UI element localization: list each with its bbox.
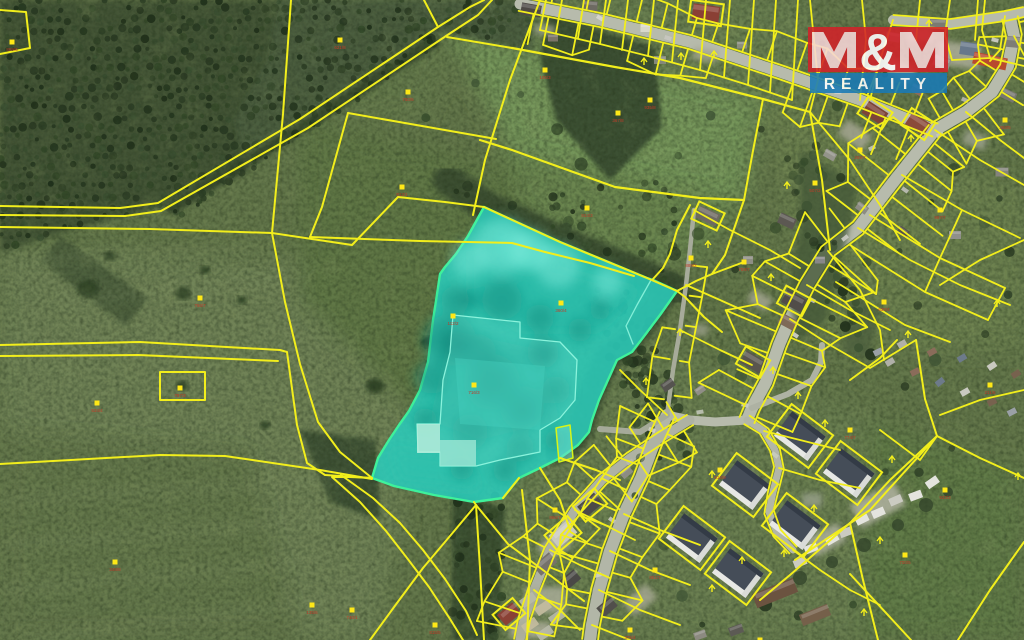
svg-text:815/5: 815/5 [429, 630, 441, 635]
svg-text:700/5: 700/5 [899, 560, 911, 565]
svg-text:997/7: 997/7 [934, 215, 946, 220]
svg-text:135/6: 135/6 [306, 610, 318, 615]
svg-text:851/7: 851/7 [649, 575, 661, 580]
svg-text:889/2: 889/2 [685, 263, 697, 268]
svg-text:534/4: 534/4 [91, 408, 103, 413]
svg-text:814/3: 814/3 [581, 213, 593, 218]
svg-text:866/7: 866/7 [549, 515, 561, 520]
svg-text:766/7: 766/7 [194, 303, 206, 308]
svg-text:360/4: 360/4 [555, 308, 567, 313]
svg-text:&: & [859, 24, 897, 82]
svg-text:813/1: 813/1 [396, 192, 408, 197]
svg-text:933/3: 933/3 [939, 495, 951, 500]
svg-text:935/8: 935/8 [644, 105, 656, 110]
svg-text:106/3: 106/3 [539, 75, 551, 80]
svg-text:869/6: 869/6 [6, 47, 18, 52]
svg-text:375/4: 375/4 [624, 635, 636, 640]
svg-text:750/6: 750/6 [402, 97, 414, 102]
svg-text:746/1: 746/1 [346, 615, 358, 620]
svg-text:621/8: 621/8 [334, 45, 346, 50]
svg-text:269/7: 269/7 [854, 155, 866, 160]
svg-text:716/3: 716/3 [468, 390, 480, 395]
svg-text:797/3: 797/3 [174, 393, 186, 398]
svg-text:348/8: 348/8 [109, 567, 121, 572]
svg-text:630/4: 630/4 [878, 307, 890, 312]
svg-text:774/7: 774/7 [844, 435, 856, 440]
svg-text:358/5: 358/5 [999, 125, 1011, 130]
svg-text:REALITY: REALITY [824, 76, 932, 93]
svg-text:112/2: 112/2 [448, 321, 459, 326]
svg-text:507/2: 507/2 [809, 188, 821, 193]
svg-text:211/6: 211/6 [985, 390, 996, 395]
svg-text:612/9: 612/9 [714, 475, 726, 480]
svg-text:759/7: 759/7 [738, 267, 750, 272]
svg-text:367/8: 367/8 [612, 118, 624, 123]
